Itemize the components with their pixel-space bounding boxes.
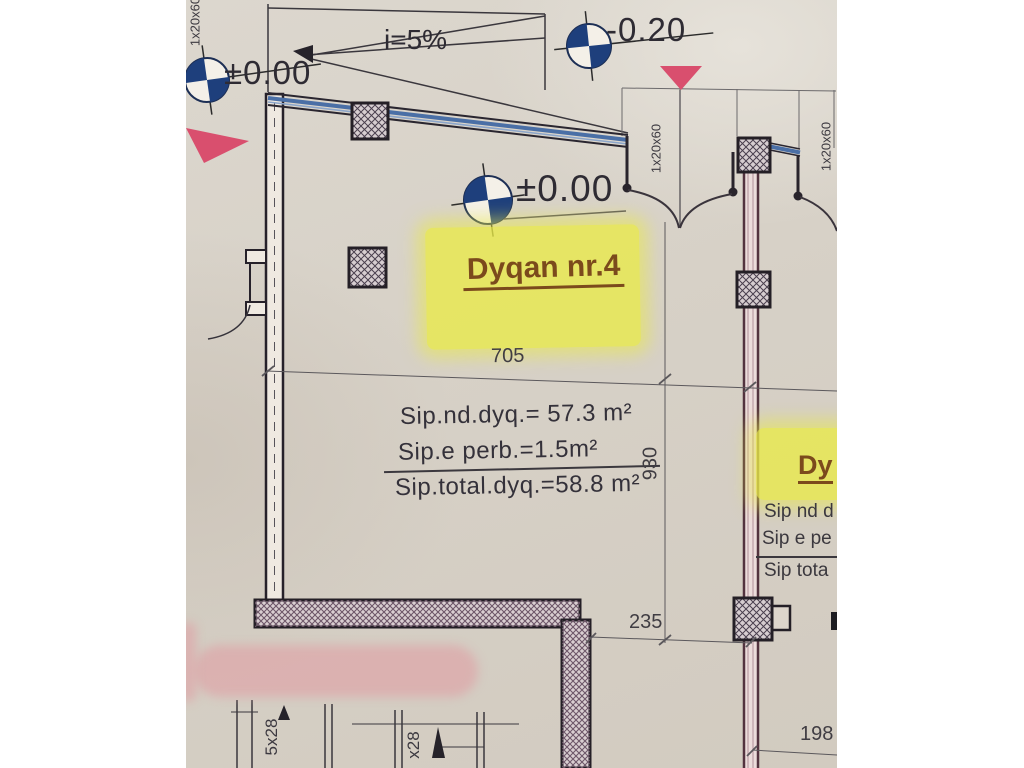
left-door-jamb-top <box>246 250 266 263</box>
column-right-bottom <box>734 598 790 640</box>
area-net: Sip.nd.dyq.= 57.3 m² <box>400 401 633 429</box>
column-interior <box>349 248 386 287</box>
level-room: ±0.00 <box>516 170 613 207</box>
column-right-mid <box>737 272 770 307</box>
dim-height: 930 <box>640 436 663 492</box>
area-common: Sip.e perb.=1.5m² <box>398 437 598 464</box>
left-wall <box>208 94 283 602</box>
neighbor-line3: Sip tota <box>764 561 828 580</box>
room-name: Dyqan nr.4 <box>463 251 625 291</box>
pink-marker-left <box>186 128 249 163</box>
page: ±0.00 -0.20 ±0.00 i=5% Dyqan nr.4 Sip.nd… <box>0 0 1024 768</box>
door1-swing-right <box>680 194 732 228</box>
redaction-smear <box>194 645 478 697</box>
level-top-right: -0.20 <box>606 13 686 46</box>
floorplan-photo: ±0.00 -0.20 ±0.00 i=5% Dyqan nr.4 Sip.nd… <box>186 0 837 768</box>
column-top-right <box>738 138 770 172</box>
redaction-smear-edge <box>186 622 196 702</box>
neighbor-line2: Sip e pe <box>762 529 832 548</box>
left-door-swing-arc <box>208 305 250 339</box>
door2-swing <box>800 197 837 231</box>
door1-swing-left <box>628 190 679 228</box>
door-size-label-1: 1x20x60 <box>649 114 664 184</box>
area-total: Sip.total.dyq.=58.8 m² <box>395 472 641 500</box>
dim-line-235 <box>590 637 752 643</box>
dim-line-198 <box>752 750 837 755</box>
column-top-wall <box>352 103 388 139</box>
door2-hinge <box>794 192 803 201</box>
level-top-left: ±0.00 <box>224 56 311 89</box>
stair-direction-arrow-large <box>432 727 445 758</box>
neighbor-line1: Sip nd d <box>764 502 834 521</box>
pink-marker-top <box>660 66 702 90</box>
clipped-fragment <box>831 612 837 630</box>
dim-width: 705 <box>491 346 525 367</box>
dim-recess: 235 <box>629 612 662 632</box>
stair-label-b: x28 <box>404 710 424 768</box>
door-size-label-clipped: 1x20x60 <box>188 0 203 57</box>
door-size-label-2: 1x20x60 <box>819 112 834 182</box>
stair-label-a: 5x28 <box>262 702 282 768</box>
neighbor-title: Dy <box>798 452 833 484</box>
slope-label: i=5% <box>384 26 447 54</box>
dim-right-bottom: 198 <box>800 724 833 744</box>
neighbor-sum-rule <box>756 556 837 558</box>
